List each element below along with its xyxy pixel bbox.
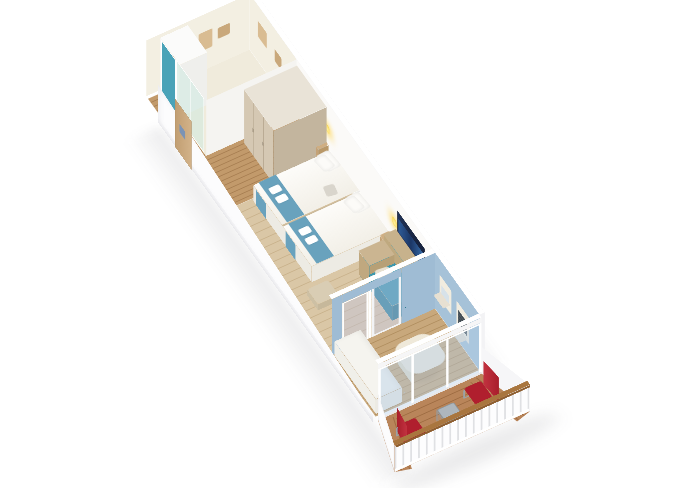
floorplan-render — [0, 0, 680, 488]
balcony-door-post-1 — [411, 353, 414, 405]
wardrobe-handle-2 — [263, 141, 264, 146]
wardrobe-handle — [253, 128, 254, 133]
balcony-door-post-2 — [446, 338, 449, 390]
